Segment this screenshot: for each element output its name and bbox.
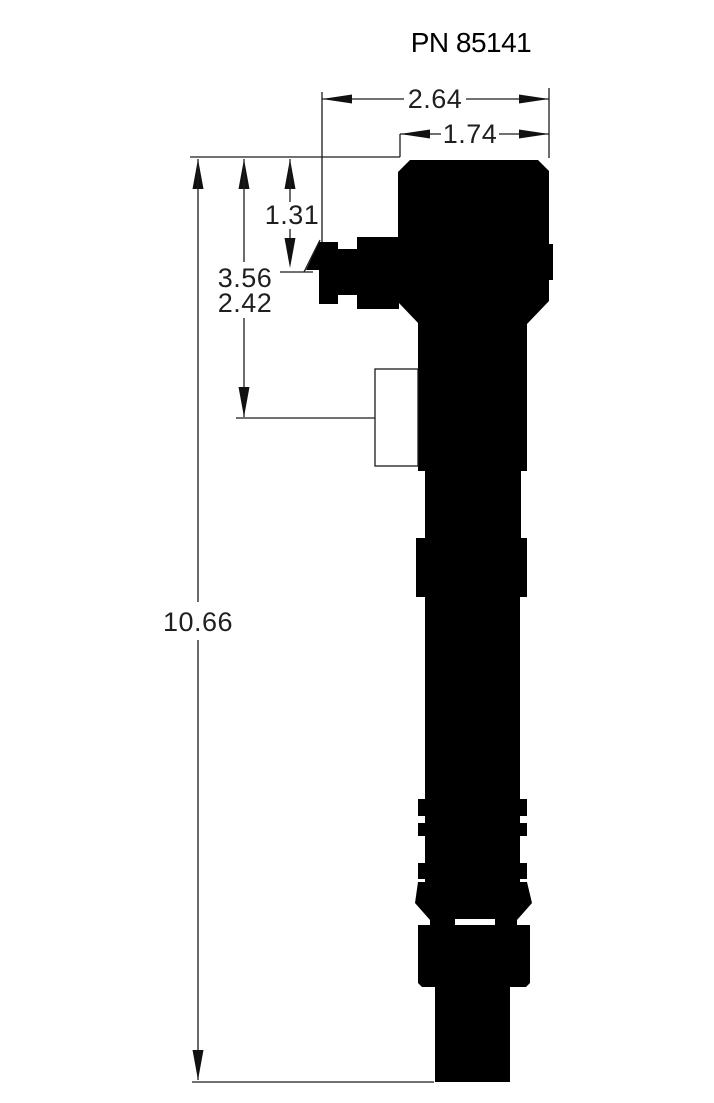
rib-gap: [425, 816, 520, 823]
arrow-right-icon: [519, 130, 549, 139]
rib: [418, 823, 527, 836]
ribbed-section: [415, 799, 532, 925]
arrow-right-icon: [519, 95, 549, 104]
arrow-left-icon: [322, 95, 352, 104]
dim-label-overall-width: 2.64: [408, 84, 463, 114]
bottom-boot: [418, 925, 530, 987]
barb-flange: [357, 237, 399, 309]
rib: [418, 863, 527, 879]
dim-label-port-offset: 1.31: [265, 200, 320, 230]
dim-label-overall-length: 10.66: [163, 607, 233, 637]
arrow-down-icon: [239, 387, 250, 417]
arrow-left-icon: [400, 130, 430, 139]
barb-collar: [319, 242, 338, 304]
bottom-tip: [435, 987, 510, 1082]
arrow-down-icon: [285, 238, 296, 268]
part-silhouette: [306, 160, 553, 1082]
shaft-mid: [425, 470, 521, 538]
flared-skirt: [415, 882, 532, 925]
barb-neck: [338, 249, 358, 295]
dim-label-bracket-upper: 2.42: [218, 288, 273, 318]
shaft-collar: [416, 538, 527, 597]
dim-overall-width: 2.64: [322, 84, 549, 114]
shaft-lower: [425, 597, 520, 799]
shaft-upper: [418, 322, 527, 471]
dim-label-body-width: 1.74: [443, 119, 498, 149]
arrow-down-icon: [193, 1050, 204, 1080]
rib-gap: [425, 879, 520, 882]
technical-drawing-sheet: 2.64 1.74 10.66 3.56 2.42 1.31: [0, 0, 714, 1103]
part-number-title: PN 85141: [411, 27, 532, 58]
connector-body: [398, 160, 553, 324]
mounting-bracket-outline: [375, 369, 418, 466]
hose-barb-port: [306, 237, 399, 309]
dim-body-width: 1.74: [400, 119, 549, 149]
rib: [418, 799, 527, 816]
rib-gap: [425, 836, 520, 863]
dim-port-offset: 1.31: [264, 159, 320, 272]
